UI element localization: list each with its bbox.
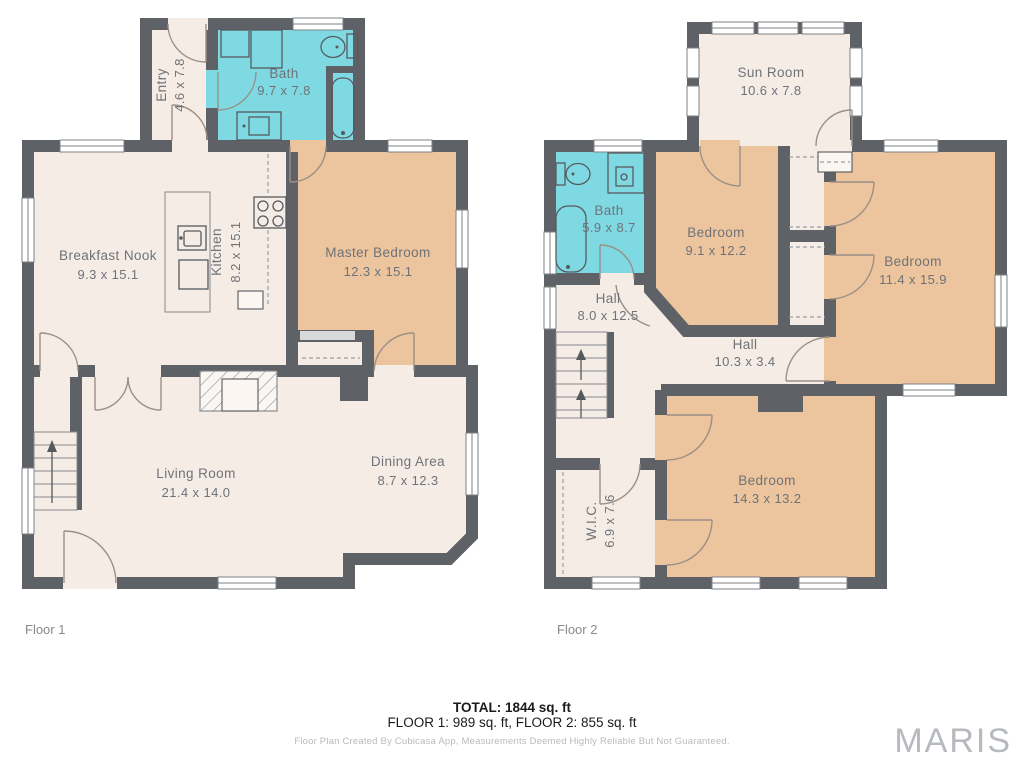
wic-dims: 6.9 x 7.6 — [602, 494, 617, 547]
floor2-plan: Sun Room 10.6 x 7.8 Bath 5.9 x 8.7 Bedro… — [544, 22, 1007, 637]
living-room-label: Living Room — [156, 466, 235, 481]
dining-area-label: Dining Area — [371, 454, 445, 469]
hall-upper-label: Hall — [596, 291, 621, 306]
dining-area-dims: 8.7 x 12.3 — [377, 473, 438, 488]
bath2-dims: 5.9 x 8.7 — [582, 220, 635, 235]
fireplace — [200, 371, 277, 411]
floor1-caption: Floor 1 — [25, 622, 65, 637]
disclaimer-text: Floor Plan Created By Cubicasa App, Meas… — [0, 736, 1024, 747]
bedroom-a-label: Bedroom — [687, 225, 745, 240]
kitchen-dims: 8.2 x 15.1 — [228, 221, 243, 282]
sun-room-dims: 10.6 x 7.8 — [740, 83, 801, 98]
sun-room-label: Sun Room — [738, 65, 805, 80]
bedroom-b-label: Bedroom — [884, 254, 942, 269]
wic-label: W.I.C. — [584, 501, 599, 540]
floor1-plan: Entry 4.6 x 7.8 Bath 9.7 x 7.8 Breakfast… — [22, 18, 478, 637]
hall-corridor-label: Hall — [733, 337, 758, 352]
floor-plan-canvas: Entry 4.6 x 7.8 Bath 9.7 x 7.8 Breakfast… — [0, 0, 1024, 700]
living-room-dims: 21.4 x 14.0 — [162, 485, 231, 500]
chimney-block-2 — [758, 384, 803, 412]
chimney-block — [340, 371, 368, 401]
breakfast-nook-label: Breakfast Nook — [59, 248, 157, 263]
total-area-text: TOTAL: 1844 sq. ft — [0, 700, 1024, 715]
bedroom-c-dims: 14.3 x 13.2 — [733, 491, 802, 506]
master-bedroom-dims: 12.3 x 15.1 — [344, 264, 413, 279]
footer: TOTAL: 1844 sq. ft FLOOR 1: 989 sq. ft, … — [0, 700, 1024, 747]
breakfast-nook-dims: 9.3 x 15.1 — [77, 267, 138, 282]
maris-watermark: MARIS — [894, 722, 1012, 761]
floor-areas-text: FLOOR 1: 989 sq. ft, FLOOR 2: 855 sq. ft — [0, 715, 1024, 730]
master-bedroom-label: Master Bedroom — [325, 245, 430, 260]
floor2-caption: Floor 2 — [557, 622, 597, 637]
bath2-label: Bath — [594, 203, 623, 218]
bedroom-a-dims: 9.1 x 12.2 — [685, 243, 746, 258]
bath1-label: Bath — [269, 66, 298, 81]
entry-dims: 4.6 x 7.8 — [172, 58, 187, 111]
kitchen-label: Kitchen — [209, 228, 224, 276]
floor-plan-page: Entry 4.6 x 7.8 Bath 9.7 x 7.8 Breakfast… — [0, 0, 1024, 768]
hall-corridor-dims: 10.3 x 3.4 — [714, 354, 775, 369]
hall-upper-dims: 8.0 x 12.5 — [577, 308, 638, 323]
kitchen-cabinet — [238, 291, 263, 309]
entry-label: Entry — [154, 68, 169, 102]
bedroom-b-dims: 11.4 x 15.9 — [879, 272, 947, 287]
bedroom-c-label: Bedroom — [738, 473, 796, 488]
bath1-dims: 9.7 x 7.8 — [257, 83, 310, 98]
